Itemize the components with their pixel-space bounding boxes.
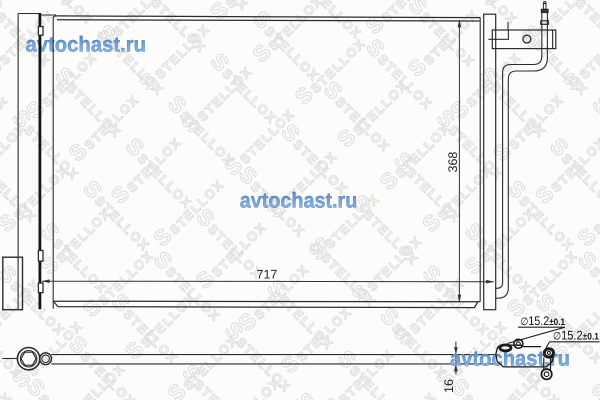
svg-text:16: 16 xyxy=(442,379,456,393)
svg-text:368: 368 xyxy=(446,152,460,173)
svg-text:717: 717 xyxy=(257,268,278,282)
svg-text:avtochast.ru: avtochast.ru xyxy=(240,189,357,213)
svg-text:∅15.2±0.1: ∅15.2±0.1 xyxy=(521,314,566,328)
svg-text:avtochast.ru: avtochast.ru xyxy=(26,33,147,57)
svg-text:∅15.2±0.1: ∅15.2±0.1 xyxy=(553,329,600,343)
